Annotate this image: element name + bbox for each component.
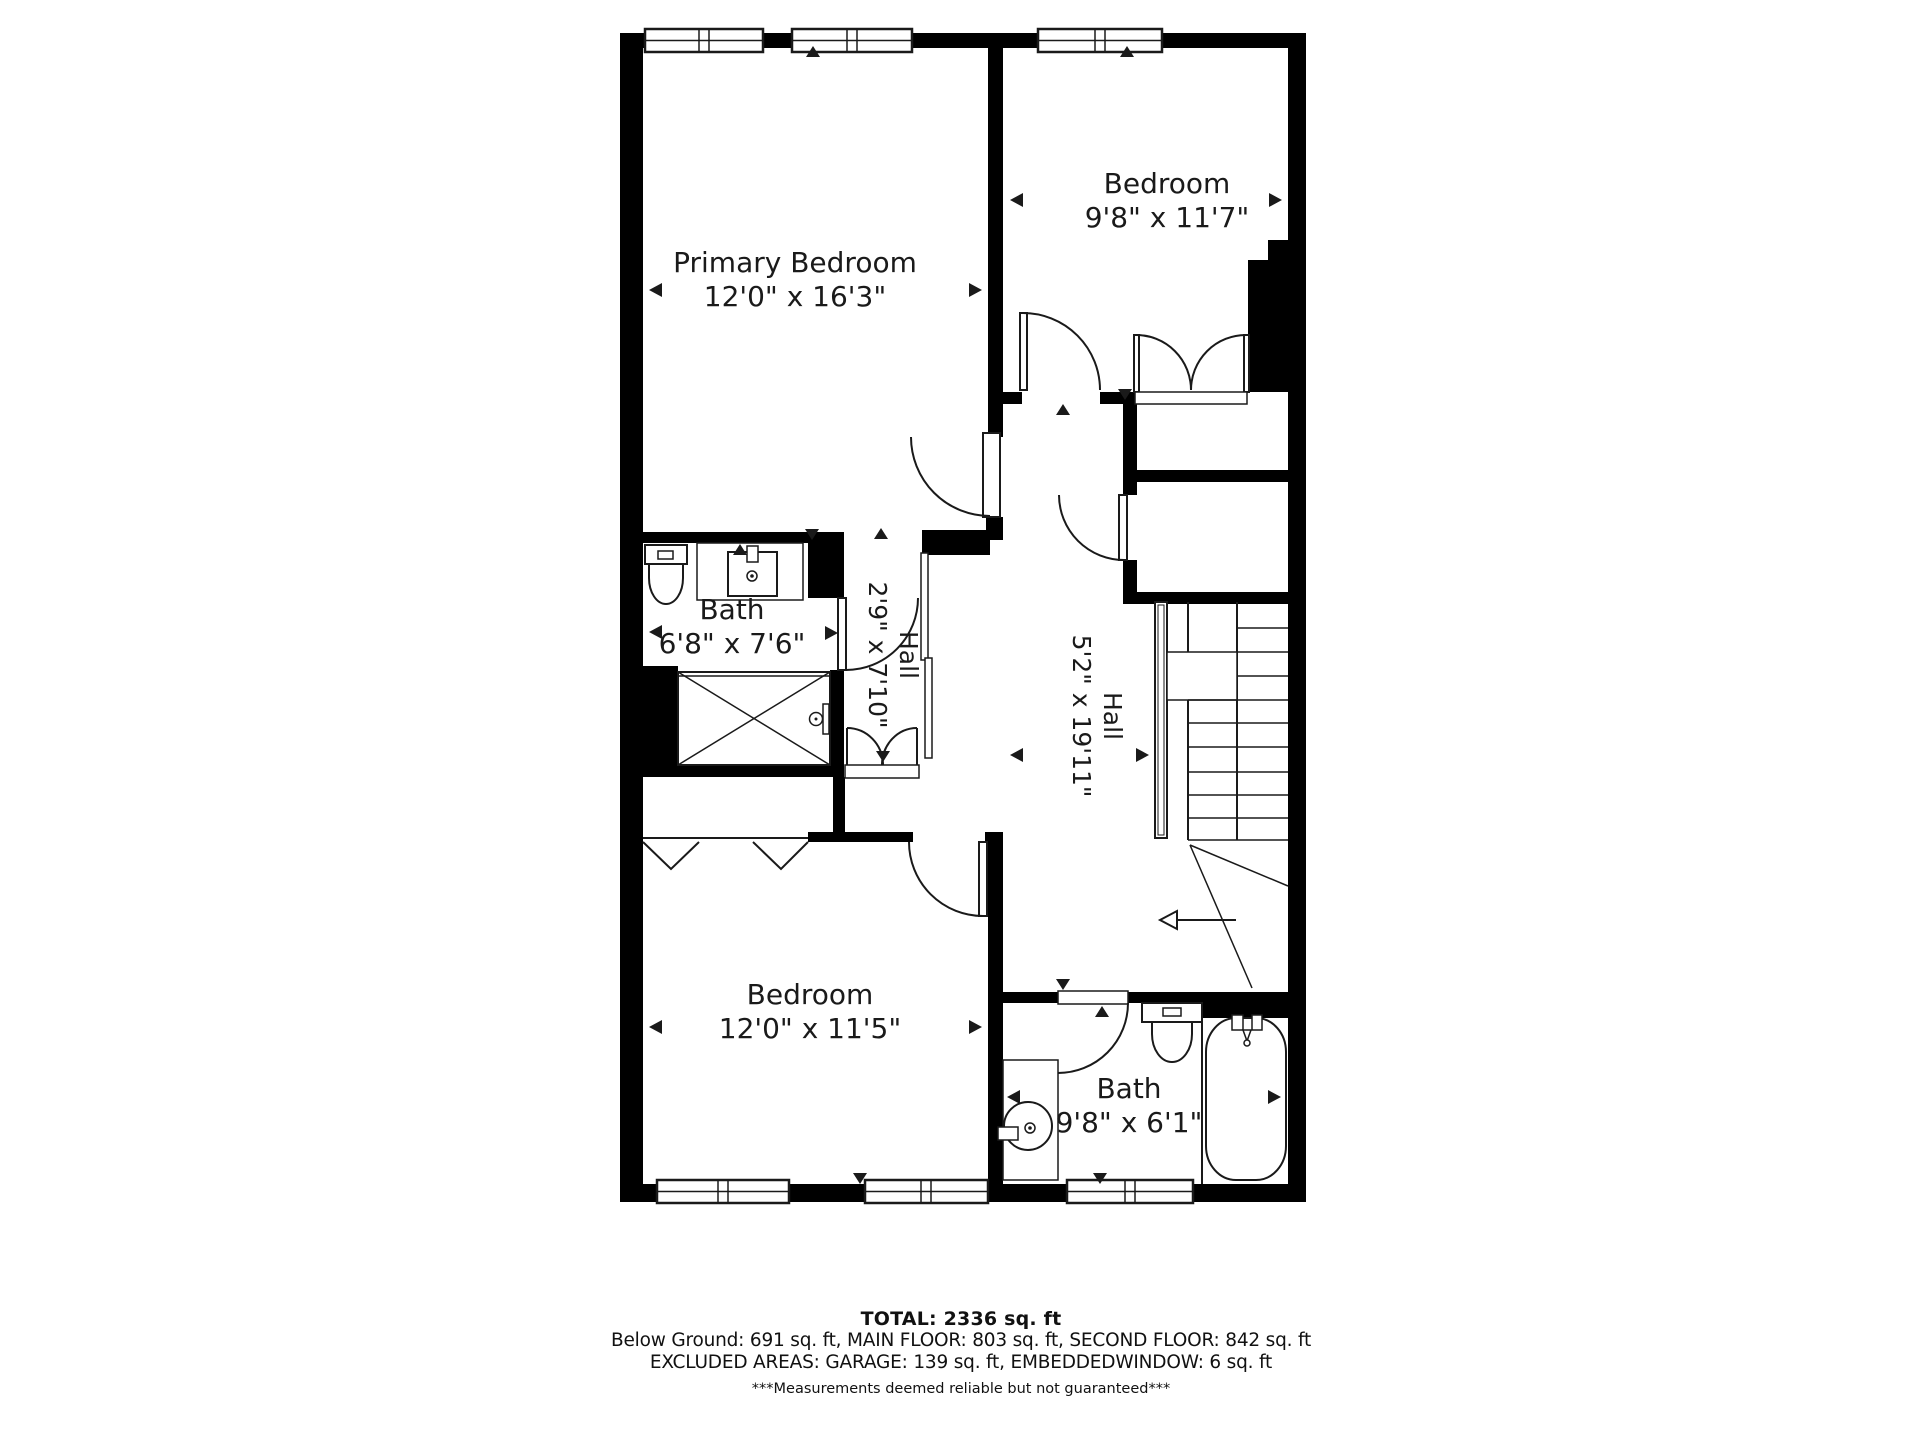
room-name: Bath <box>659 593 806 627</box>
door-swing <box>909 842 987 916</box>
door-swing <box>1058 991 1128 1073</box>
room-name: Primary Bedroom <box>673 246 917 280</box>
room-dimensions: 6'8" x 7'6" <box>659 627 806 661</box>
disclaimer-text: ***Measurements deemed reliable but not … <box>752 1381 1170 1397</box>
room-label-bath-upper: Bath 6'8" x 7'6" <box>659 593 806 661</box>
staircase <box>1155 602 1288 988</box>
room-dimensions: 12'0" x 16'3" <box>673 280 917 314</box>
toilet-icon <box>1142 1003 1202 1062</box>
window <box>865 1180 988 1203</box>
room-dimensions: 2'9" x 7'10" <box>862 582 893 729</box>
door-swing <box>911 433 1000 517</box>
floor-areas-text: Below Ground: 691 sq. ft, MAIN FLOOR: 80… <box>611 1330 1311 1351</box>
window <box>645 29 763 52</box>
sink-icon <box>697 543 803 600</box>
floor-plan-page: Primary Bedroom 12'0" x 16'3" Bedroom 9'… <box>0 0 1920 1440</box>
closet-chevron-doors <box>643 842 808 869</box>
room-label-bath-lower: Bath 9'8" x 6'1" <box>1056 1072 1203 1140</box>
closet-double-door <box>1134 335 1249 404</box>
excluded-areas-text: EXCLUDED AREAS: GARAGE: 139 sq. ft, EMBE… <box>650 1352 1272 1373</box>
door-swing <box>1059 495 1127 560</box>
room-label-bedroom-2: Bedroom 9'8" x 11'7" <box>1085 167 1250 235</box>
window <box>1067 1180 1193 1203</box>
room-label-hall-small: Hall 2'9" x 7'10" <box>862 582 924 729</box>
window <box>792 29 912 52</box>
door-swing <box>1020 313 1100 390</box>
room-name: Bedroom <box>1085 167 1250 201</box>
total-area-text: TOTAL: 2336 sq. ft <box>861 1308 1062 1330</box>
floor-plan-drawing <box>0 0 1920 1440</box>
room-label-bedroom-3: Bedroom 12'0" x 11'5" <box>719 978 901 1046</box>
room-dimensions: 9'8" x 6'1" <box>1056 1106 1203 1140</box>
room-name: Bath <box>1056 1072 1203 1106</box>
sink-icon <box>998 1060 1058 1180</box>
room-name: Hall <box>893 582 924 729</box>
window <box>657 1180 789 1203</box>
shower-icon <box>678 672 830 765</box>
room-dimensions: 12'0" x 11'5" <box>719 1012 901 1046</box>
room-name: Hall <box>1097 635 1128 798</box>
window <box>1038 29 1162 52</box>
room-name: Bedroom <box>719 978 901 1012</box>
room-label-hall-stairs: Hall 5'2" x 19'11" <box>1066 635 1128 798</box>
room-dimensions: 5'2" x 19'11" <box>1066 635 1097 798</box>
room-label-primary-bedroom: Primary Bedroom 12'0" x 16'3" <box>673 246 917 314</box>
room-dimensions: 9'8" x 11'7" <box>1085 201 1250 235</box>
